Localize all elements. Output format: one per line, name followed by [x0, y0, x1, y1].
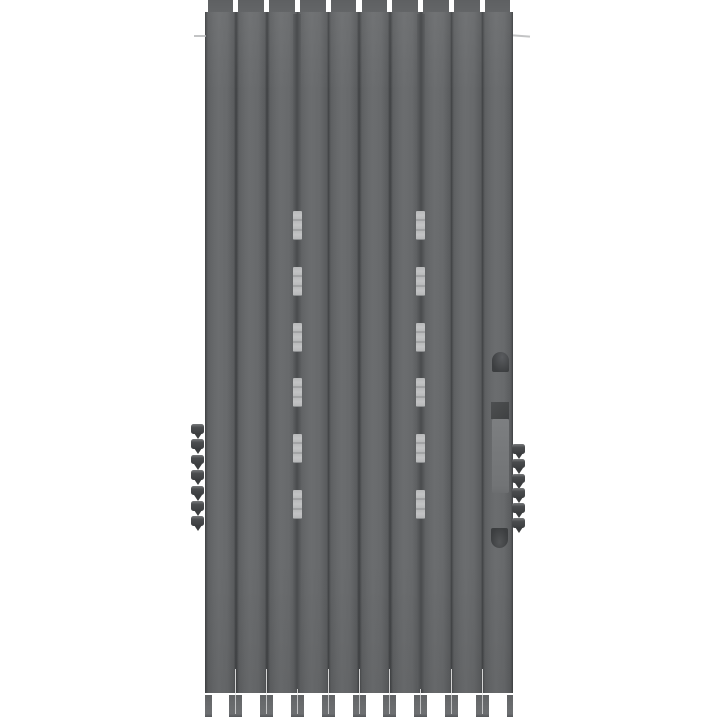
slat-gap-slit — [235, 669, 236, 695]
latch-square — [491, 402, 509, 419]
slat-gap-slit — [359, 669, 360, 695]
foot-split-slit — [389, 695, 390, 714]
right-tick-mark — [513, 34, 530, 37]
left-mount-tooth — [191, 424, 204, 439]
door-slat — [359, 12, 390, 693]
foot-split-slit — [235, 695, 236, 714]
hinge-knuckle-group — [416, 434, 425, 463]
tooth-point — [194, 525, 202, 531]
slat-gap-slit — [451, 669, 452, 695]
handle-bottom-cup — [491, 528, 508, 548]
door-slat — [451, 12, 482, 693]
right-mount-tooth — [512, 459, 525, 474]
hinge-knuckle-group — [293, 434, 302, 463]
door-slat — [236, 12, 267, 693]
tooth-point — [194, 464, 202, 470]
handle-recess-strip — [492, 419, 509, 493]
slat-gap-slit — [266, 669, 267, 695]
hinge-knuckle-group — [293, 211, 302, 240]
hinge-knuckle-group — [293, 490, 302, 519]
door-slat — [205, 12, 236, 693]
right-mount-tooth — [512, 503, 525, 518]
render-stage — [0, 0, 720, 720]
foot-split-slit — [482, 695, 483, 714]
right-mount-tooth — [512, 444, 525, 459]
left-mount-tooth — [191, 501, 204, 516]
left-mount-tooth — [191, 470, 204, 485]
right-mount-tooth — [512, 488, 525, 503]
hinge-knuckle-group — [416, 490, 425, 519]
hinge-knuckle-group — [293, 267, 302, 296]
door-foot — [205, 695, 212, 717]
right-mount-tooth — [512, 518, 525, 533]
left-tick-mark — [194, 35, 206, 37]
left-mount-tooth — [191, 455, 204, 470]
foot-split-slit — [420, 695, 421, 714]
foot-split-slit — [359, 695, 360, 714]
door-slat — [328, 12, 359, 693]
door-slat — [421, 12, 452, 693]
door-foot — [507, 695, 514, 717]
tooth-point — [194, 495, 202, 501]
left-mount-tooth — [191, 439, 204, 454]
hinge-knuckle-group — [416, 267, 425, 296]
hinge-knuckle-group — [416, 378, 425, 407]
slat-gap-slit — [328, 669, 329, 695]
slat-gap-slit — [389, 669, 390, 695]
right-mount-tooth — [512, 474, 525, 489]
hinge-knuckle-group — [293, 378, 302, 407]
tooth-point — [194, 433, 202, 439]
folding-shutter-door — [205, 0, 513, 718]
hinge-knuckle-group — [416, 211, 425, 240]
foot-split-slit — [451, 695, 452, 714]
foot-split-slit — [266, 695, 267, 714]
hinge-knuckle-group — [416, 323, 425, 352]
tooth-point — [515, 527, 523, 533]
tooth-point — [194, 510, 202, 516]
hinge-knuckle-group — [293, 323, 302, 352]
handle-top-cup — [492, 352, 509, 372]
left-mount-tooth — [191, 516, 204, 531]
foot-split-slit — [328, 695, 329, 714]
foot-split-slit — [297, 695, 298, 714]
tooth-point — [194, 479, 202, 485]
tooth-point — [194, 448, 202, 454]
left-mount-tooth — [191, 486, 204, 501]
door-slat — [297, 12, 328, 693]
slat-gap-slit — [482, 669, 483, 695]
